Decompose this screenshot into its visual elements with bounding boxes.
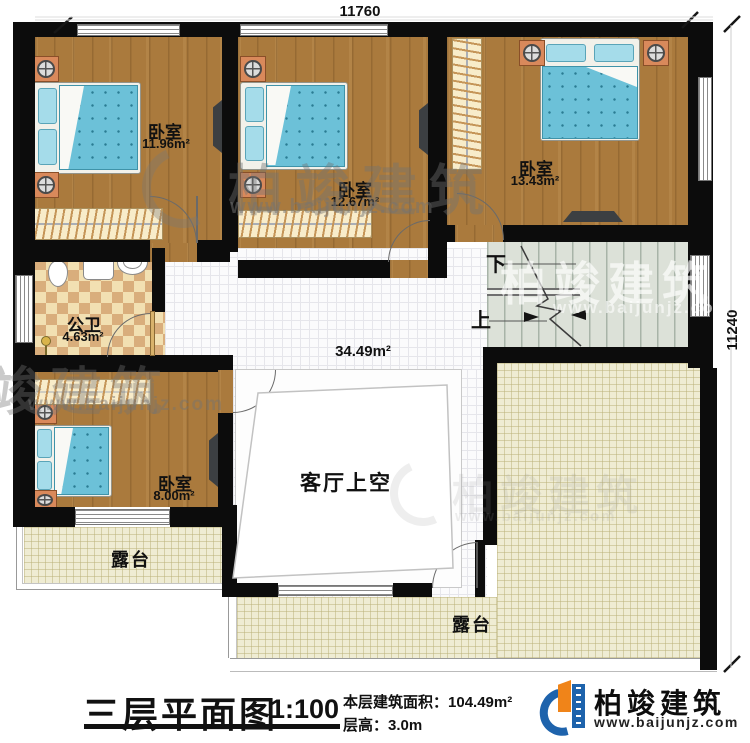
brand-logo-icon bbox=[572, 684, 585, 728]
floor-area-line: 本层建筑面积：104.49m² bbox=[343, 691, 512, 712]
room-name-label: 露台 bbox=[452, 611, 492, 637]
room-area-label: 13.43m² bbox=[511, 173, 559, 188]
room-name-label: 客厅上空 bbox=[300, 467, 392, 497]
floor-area-value: 104.49m² bbox=[448, 694, 512, 711]
floor-area-label: 本层建筑面积： bbox=[343, 694, 448, 711]
room-area-label: 4.63m² bbox=[62, 329, 103, 344]
floor-height-line: 层高：3.0m bbox=[343, 714, 422, 735]
brand-logo-icon bbox=[558, 680, 571, 712]
room-area-label: 11.96m² bbox=[142, 136, 190, 151]
page-title: 三层平面图 bbox=[83, 686, 278, 738]
dimension-right: 11240 bbox=[724, 297, 740, 363]
floor-plan-canvas: 卧室 11.96m² 卧室 12.67m² 卧室 13.43m² 卧室 8.00… bbox=[0, 0, 750, 743]
room-area-label: 8.00m² bbox=[153, 488, 194, 503]
plan-overlay bbox=[0, 0, 750, 743]
scale-label: 1:100 bbox=[270, 694, 339, 725]
hall-area-label: 34.49m² bbox=[335, 343, 391, 360]
room-area-label: 12.67m² bbox=[331, 194, 379, 209]
floor-height-label: 层高： bbox=[343, 717, 388, 734]
stairs-down-label: 下 bbox=[486, 248, 506, 277]
stairs-up-label: 上 bbox=[471, 304, 491, 333]
room-name-label: 露台 bbox=[111, 546, 151, 572]
dimension-top: 11760 bbox=[340, 3, 381, 20]
floor-height-value: 3.0m bbox=[388, 717, 422, 734]
brand-website: www.baijunjz.com bbox=[594, 714, 739, 730]
